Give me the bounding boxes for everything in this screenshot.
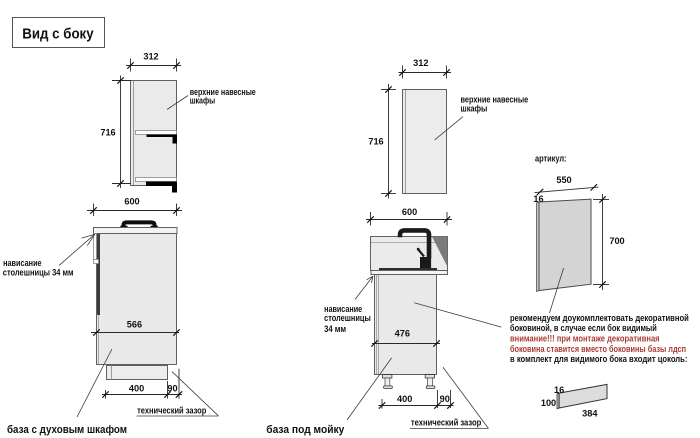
- svg-text:700: 700: [609, 236, 624, 246]
- svg-text:шкафы: шкафы: [461, 103, 488, 114]
- svg-text:столешницы 34 мм: столешницы 34 мм: [3, 267, 74, 278]
- svg-text:артикул:: артикул:: [535, 153, 567, 163]
- svg-text:столешницы: столешницы: [324, 312, 371, 323]
- svg-text:476: 476: [395, 329, 410, 339]
- svg-text:400: 400: [397, 394, 412, 404]
- svg-text:Вид с боку: Вид с боку: [22, 26, 93, 42]
- svg-text:716: 716: [368, 136, 383, 146]
- svg-text:384: 384: [582, 408, 598, 418]
- svg-text:90: 90: [440, 394, 450, 404]
- svg-text:312: 312: [413, 58, 428, 68]
- svg-text:716: 716: [100, 128, 115, 138]
- svg-text:16: 16: [554, 385, 564, 395]
- svg-text:база под мойку: база под мойку: [266, 424, 345, 436]
- svg-text:внимание!!! при монтаже декора: внимание!!! при монтаже декоративная: [510, 332, 660, 343]
- svg-text:566: 566: [127, 319, 142, 329]
- svg-text:технический зазор: технический зазор: [137, 404, 206, 415]
- svg-text:технический зазор: технический зазор: [411, 417, 482, 428]
- svg-text:600: 600: [124, 196, 139, 206]
- svg-text:100: 100: [541, 398, 556, 408]
- svg-text:550: 550: [556, 175, 571, 185]
- svg-text:в комплект для видимого бока в: в комплект для видимого бока входит цоко…: [510, 353, 687, 364]
- svg-text:90: 90: [167, 384, 177, 394]
- svg-text:400: 400: [129, 384, 144, 394]
- svg-text:600: 600: [402, 207, 417, 217]
- svg-text:34 мм: 34 мм: [324, 323, 346, 334]
- svg-text:база с духовым шкафом: база с духовым шкафом: [7, 424, 127, 436]
- svg-text:312: 312: [143, 52, 158, 62]
- svg-text:шкафы: шкафы: [190, 95, 215, 106]
